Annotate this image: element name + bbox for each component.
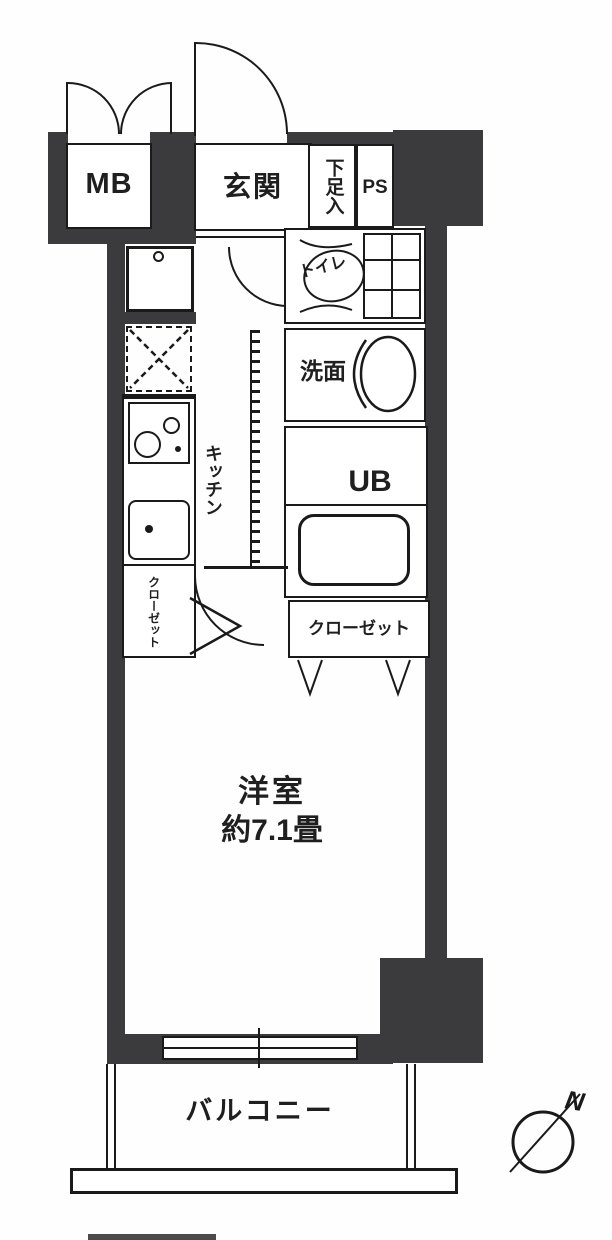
- unit-bath-divider: [286, 504, 426, 506]
- closet-right-folding-marks: [298, 660, 410, 694]
- room-mb-label: MB: [66, 150, 152, 220]
- wall-top-right-block: [393, 130, 483, 226]
- stove-burner-small: [163, 417, 180, 434]
- mb-door-arc-left: [68, 82, 120, 134]
- wall-bottom-right-pillar: [380, 958, 483, 1063]
- main-room-label: 洋室: [172, 774, 372, 810]
- window-center-tick: [258, 1028, 260, 1068]
- balcony-rail-left: [106, 1064, 116, 1168]
- room-closet-left-label: クローゼット: [144, 570, 162, 654]
- refrigerator-space: [126, 326, 192, 392]
- room-washroom-label: 洗面: [290, 352, 356, 392]
- mb-door-arc-right: [120, 82, 172, 134]
- balcony-label: バルコニー: [130, 1094, 390, 1130]
- corridor-bottom-line: [204, 566, 288, 569]
- room-unit-bath-label: UB: [340, 460, 400, 502]
- main-room-door-arc: [194, 576, 264, 646]
- stove: [128, 402, 190, 464]
- compass-needle: [510, 1094, 580, 1172]
- corridor-hatched-wall: [250, 330, 260, 566]
- room-shoe-box-label: 下足入: [310, 147, 354, 225]
- wall-right: [425, 226, 447, 962]
- entrance-door-leaf: [194, 42, 196, 136]
- wall-mb-entrance-divider: [150, 132, 196, 228]
- stove-burner-large: [134, 431, 161, 458]
- bathtub: [298, 514, 410, 586]
- compass-north-label: N: [563, 1084, 588, 1117]
- compass: N: [498, 1080, 610, 1202]
- floor-plan: MB 玄関 下足入 PS トイレ 洗面 UB クローゼット キッチン クローゼッ…: [0, 0, 612, 1240]
- entrance-door-arc: [196, 42, 288, 134]
- window-middle-line: [164, 1047, 356, 1049]
- stove-knob: [175, 446, 181, 452]
- room-ps-label: PS: [356, 168, 394, 208]
- main-room-size-label: 約7.1畳: [172, 812, 372, 848]
- kitchen-sink: [128, 500, 190, 560]
- kitchen-label: キッチン: [200, 428, 224, 532]
- counter-ledge: [124, 312, 196, 324]
- balcony-slab: [70, 1168, 458, 1194]
- compass-circle: [513, 1112, 573, 1172]
- balcony-rail-right: [406, 1064, 416, 1168]
- mb-door-jamb-right: [170, 82, 172, 134]
- room-closet-right-label: クローゼット: [292, 608, 426, 650]
- kitchen-sink-drain: [145, 525, 153, 533]
- bottom-partial-element: [88, 1234, 216, 1240]
- room-entrance-label: 玄関: [196, 152, 310, 222]
- hall-door-arc: [228, 247, 288, 307]
- mb-door-jamb-left: [66, 82, 68, 134]
- washing-machine-faucet: [153, 251, 164, 262]
